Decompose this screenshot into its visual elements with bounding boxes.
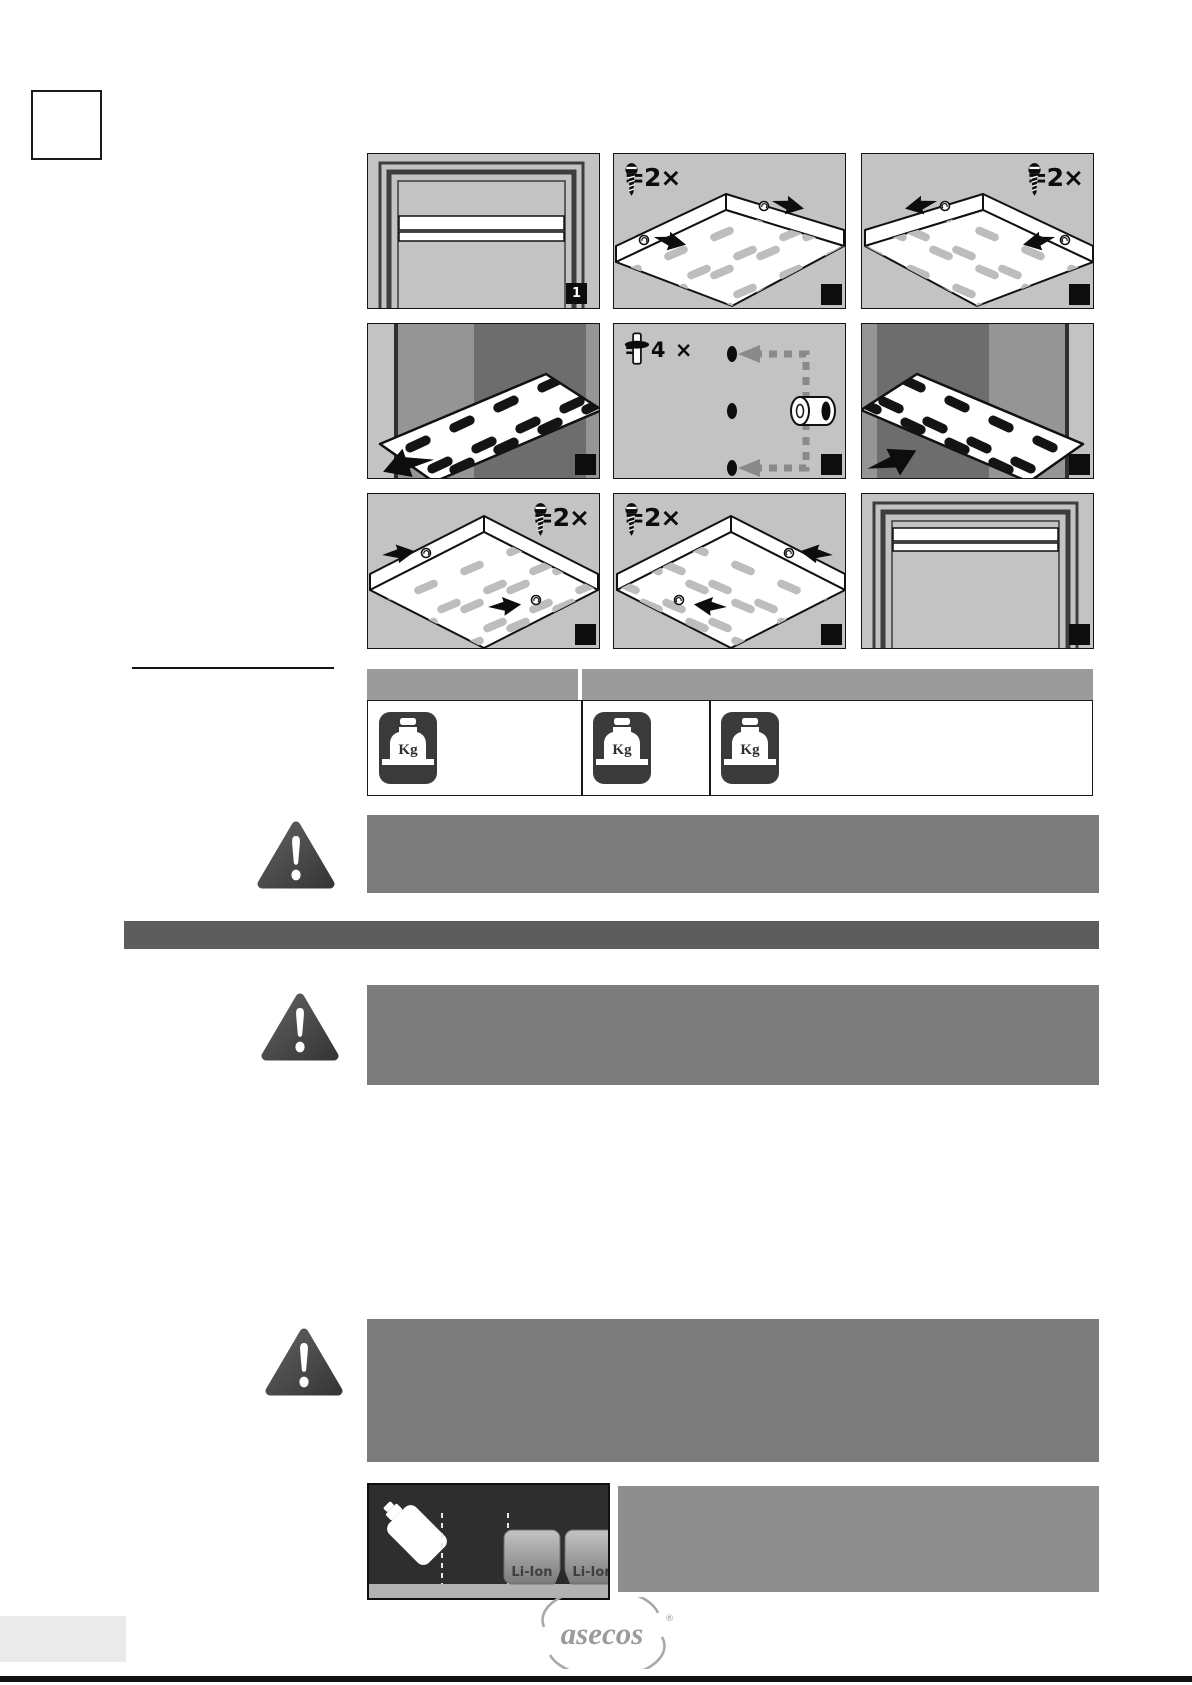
page-edge-tab [0,1616,126,1662]
step-number-badge [821,624,842,645]
shelf-load-kg-icon: Kg [721,712,779,784]
screw-count-label: =2× [1027,161,1083,190]
plug-arrow-top [738,345,760,363]
screw-icon [533,501,548,537]
step-number-badge [575,624,596,645]
registered-mark: ® [665,1614,674,1624]
kg-label: Kg [740,742,760,758]
warning-text-bar [367,1319,1099,1462]
shelf-plug-3d [791,397,835,425]
shelf-load-kg-icon: Kg [379,712,437,784]
panel-step-cabinet-before: 1 [367,153,600,309]
figure-floor [369,1584,608,1598]
li-ion-label: Li-Ion [511,1565,552,1580]
shelf-load-kg-icon: Kg [593,712,651,784]
kg-label: Kg [612,742,632,758]
shelf-holes [727,346,737,476]
step-number-badge [1069,284,1090,305]
step-number: 1 [572,286,581,301]
step-number-badge [821,284,842,305]
plug-arrow-bottom [738,459,760,477]
panel-step-unscrew-left: =2× [613,153,846,309]
table-separator [581,701,583,795]
asecos-logo: asecos ® [518,1597,688,1669]
plug-count-label: = 4 × [624,331,693,361]
figure-caption-bar [618,1486,1099,1592]
panel-step-screw-right: =2× [613,493,846,649]
shelf-front-bar [893,528,1058,551]
clearance-dashed-lines [442,1513,508,1584]
warning-triangle-icon [256,818,336,892]
left-margin-rule [132,667,334,669]
step-number-badge: 1 [566,283,587,304]
plug-icon [624,331,650,367]
panel-step-pull-out [367,323,600,479]
table-separator [709,701,711,795]
load-table-header-left [367,669,578,700]
warning-text-bar [367,985,1099,1085]
section-header-bar [124,921,1099,949]
warning-triangle-icon [260,990,340,1064]
page-corner-box [31,90,102,160]
li-ion-cell: Li-Ion [504,1530,560,1584]
panel-step-screw-left: =2× [367,493,600,649]
warning-triangle-icon [264,1325,344,1399]
li-ion-battery-figure: Li-Ion Li-Ion [367,1483,610,1600]
brand-wordmark: asecos [561,1616,644,1651]
screw-count-label: =2× [624,501,680,530]
step-number-badge [1069,454,1090,475]
panel-step-unscrew-right: =2× [861,153,1094,309]
panel-step-plug-positions: = 4 × [613,323,846,479]
screw-count-label: =2× [624,161,680,190]
step-number-badge [821,454,842,475]
manual-page: 1 =2× =2× [0,0,1192,1685]
step-number-badge [1069,624,1090,645]
warning-text-bar [367,815,1099,893]
screw-count-label: =2× [533,501,589,530]
li-ion-cell: Li-Ion [565,1530,608,1584]
load-table-header-right [582,669,1093,700]
panel-step-cabinet-after [861,493,1094,649]
page-bottom-rule [0,1676,1192,1682]
screw-icon [1027,161,1042,197]
shelf-front-bar [399,216,564,241]
li-ion-label: Li-Ion [572,1565,608,1580]
load-table-body: Kg Kg Kg [367,700,1093,796]
screw-icon [624,161,639,197]
step-number-badge [575,454,596,475]
panel-step-push-in [861,323,1094,479]
kg-label: Kg [398,742,418,758]
screw-icon [624,501,639,537]
tilted-battery-icon [373,1491,450,1568]
